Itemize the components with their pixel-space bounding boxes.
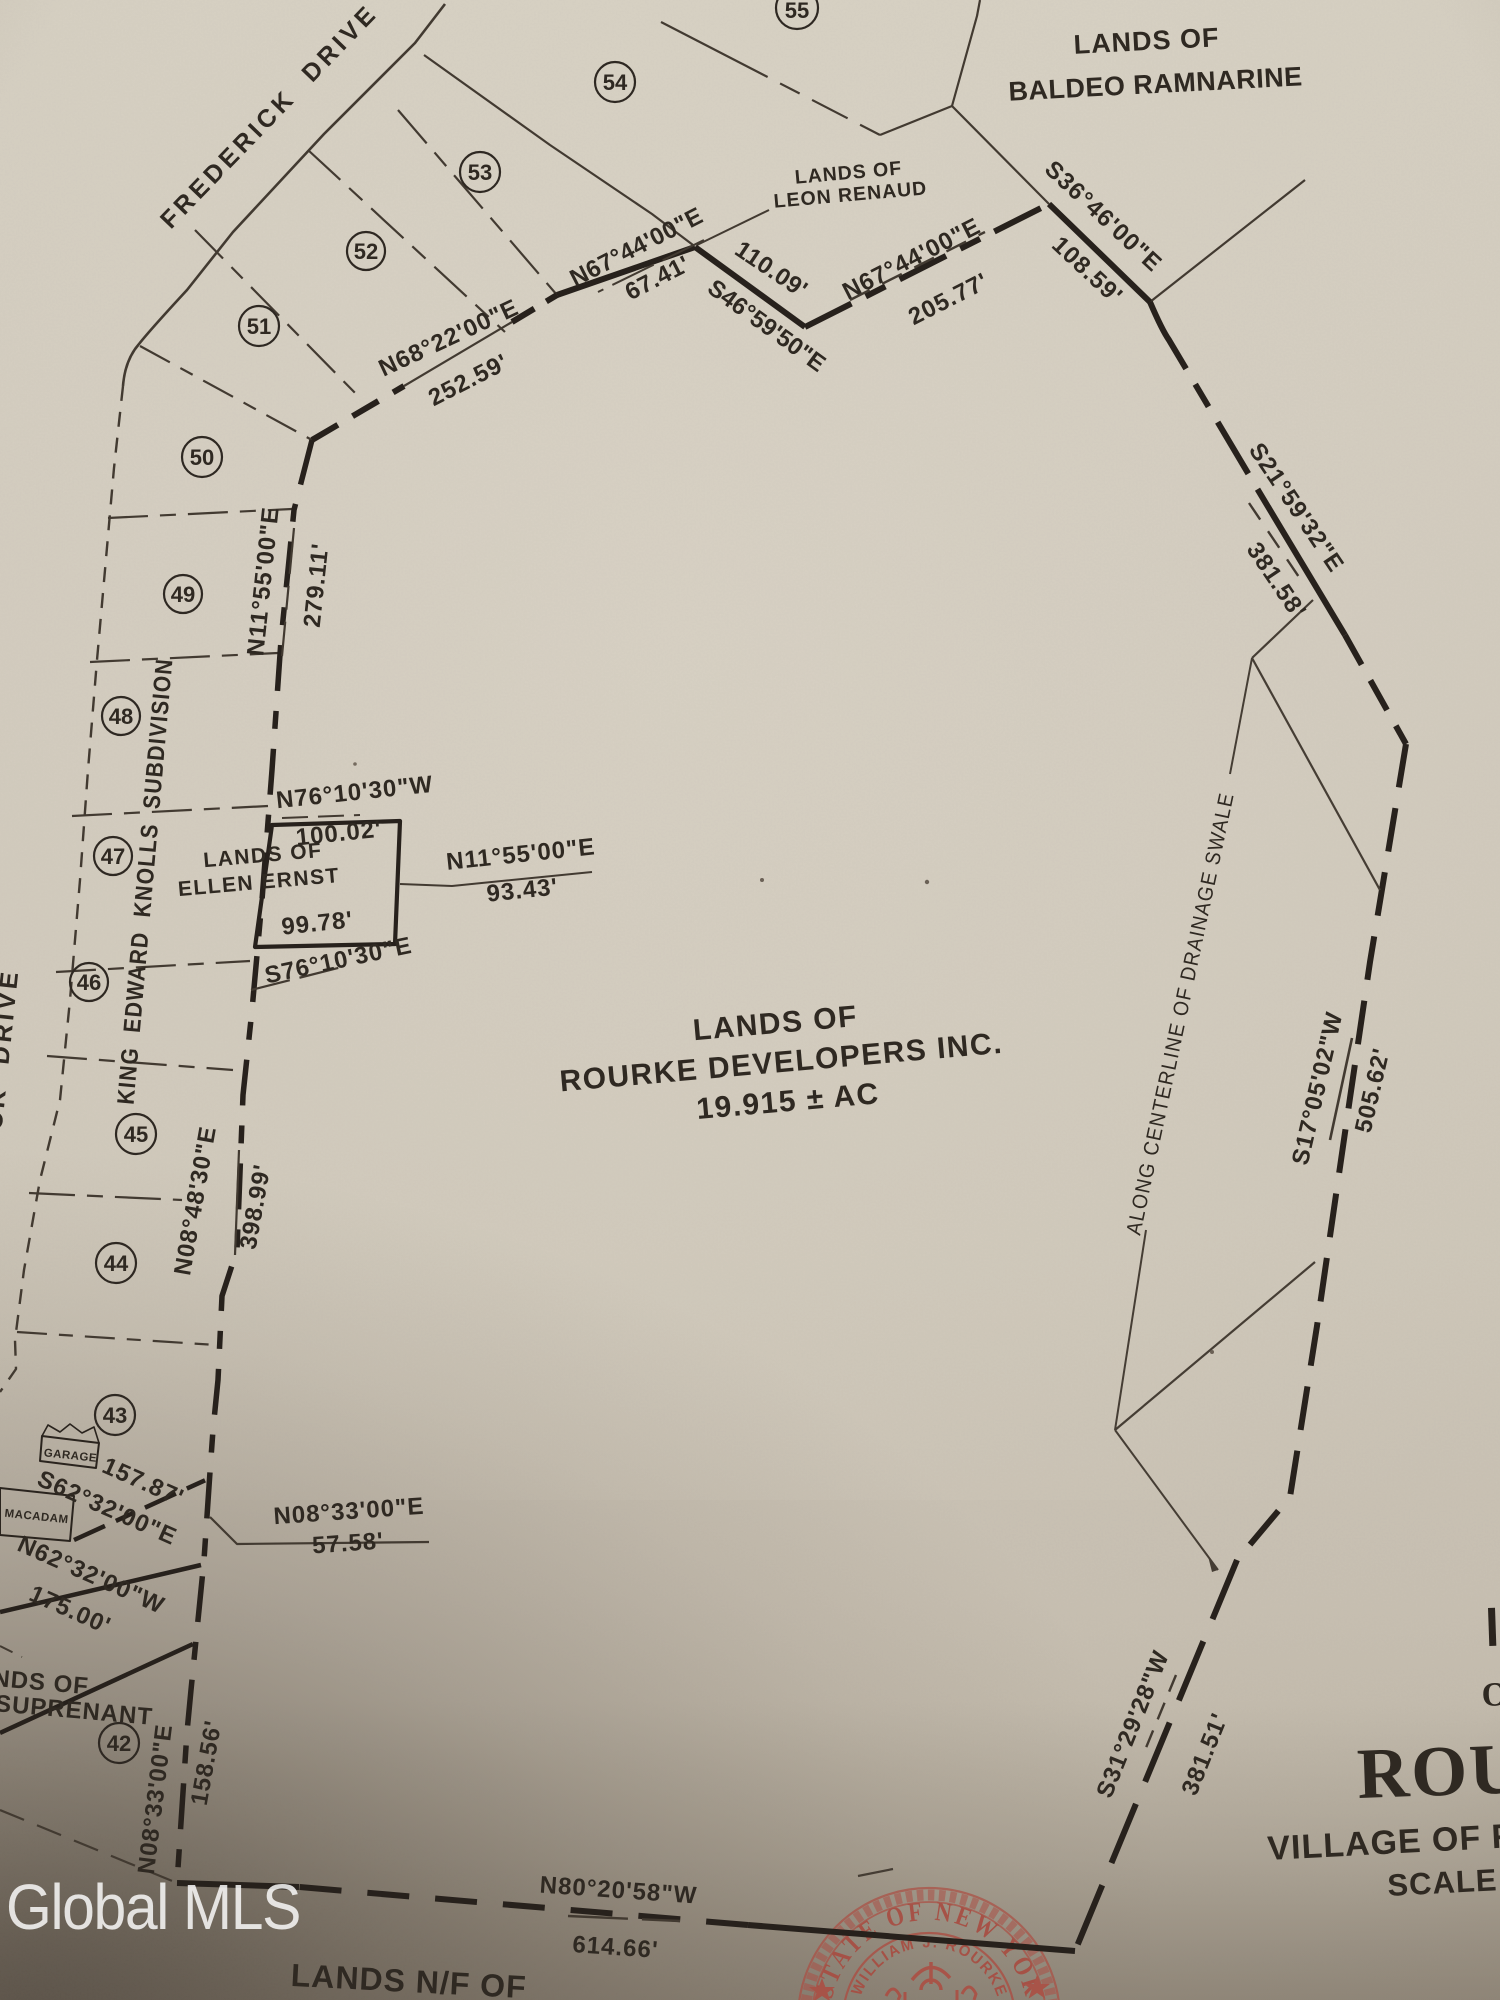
svg-text:Global MLS: Global MLS	[6, 1871, 300, 1943]
svg-text:SCALE:: SCALE:	[1387, 1862, 1500, 1903]
svg-text:ROURK: ROURK	[1356, 1724, 1500, 1814]
svg-text:42: 42	[107, 1731, 131, 1756]
svg-text:45: 45	[124, 1122, 148, 1147]
svg-text:49: 49	[171, 582, 195, 607]
svg-text:48: 48	[109, 704, 133, 729]
svg-text:43: 43	[103, 1403, 127, 1428]
svg-text:47: 47	[101, 844, 125, 869]
svg-text:54: 54	[603, 70, 628, 95]
svg-text:57.58': 57.58'	[311, 1528, 384, 1560]
svg-text:46: 46	[77, 970, 101, 995]
svg-text:50: 50	[190, 445, 214, 470]
svg-text:OF: OF	[1481, 1675, 1500, 1714]
svg-text:53: 53	[468, 160, 492, 185]
svg-text:44: 44	[104, 1251, 129, 1276]
svg-text:51: 51	[247, 314, 271, 339]
svg-text:52: 52	[354, 239, 378, 264]
svg-text:55: 55	[785, 0, 809, 23]
